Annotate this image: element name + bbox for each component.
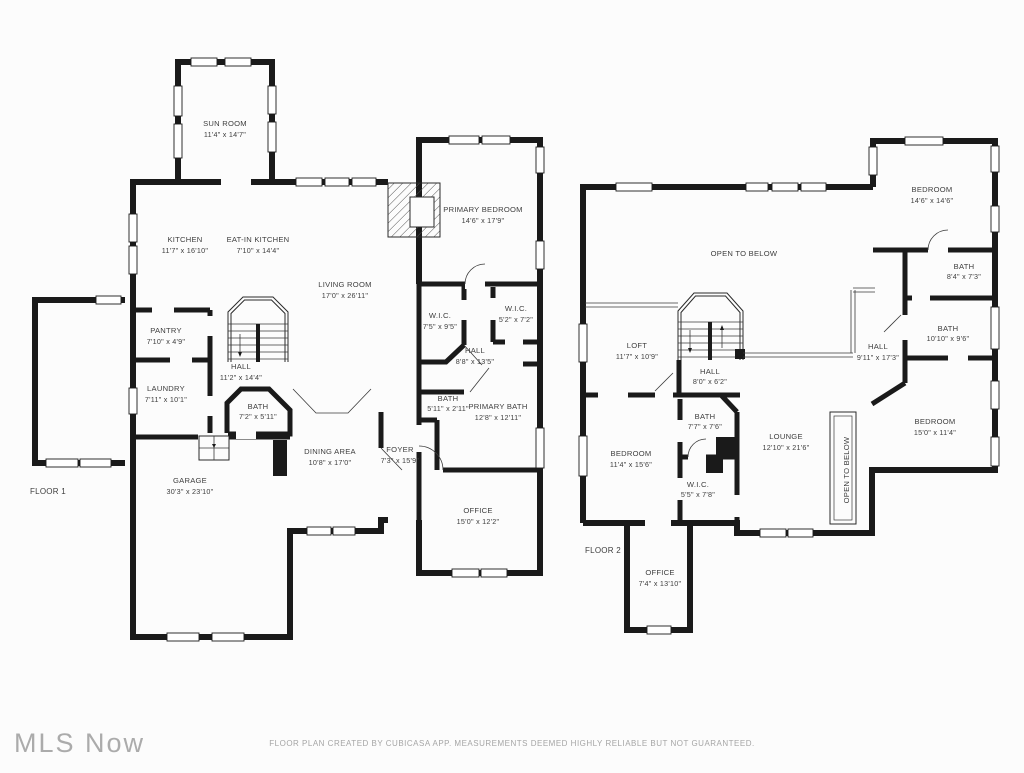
window <box>869 147 877 175</box>
room-dims-bath-main: 7'2" x 5'11" <box>239 412 277 421</box>
chimney-block <box>273 440 287 476</box>
room-dims-foyer: 7'3" x 15'9" <box>381 456 420 465</box>
room-dims-wic-2: 5'2" x 7'2" <box>499 315 533 324</box>
window <box>191 58 217 66</box>
door-opening <box>598 391 628 400</box>
room-label-primary-bath: PRIMARY BATH <box>468 402 527 411</box>
room-dims-sun-room: 11'4" x 14'7" <box>204 130 246 139</box>
room-dims-hall-stairs: 11'2" x 14'4" <box>220 373 262 382</box>
door-opening <box>236 430 256 439</box>
window <box>482 136 510 144</box>
door-opening <box>645 519 671 528</box>
fireplace <box>388 183 440 237</box>
door-opening <box>460 300 469 320</box>
window <box>129 246 137 274</box>
room-label-bedroom-2: BEDROOM <box>915 417 956 426</box>
window <box>129 214 137 242</box>
window <box>991 437 999 466</box>
window <box>80 459 111 467</box>
floor2-labels: OPEN TO BELOW LOFT 11'7" x 10'9" HALL 8'… <box>585 185 981 588</box>
room-label-bath-1: BATH <box>954 262 975 271</box>
wall-segment <box>35 300 125 463</box>
window <box>536 147 544 173</box>
door-opening <box>928 246 948 255</box>
room-label-wic-2: W.I.C. <box>505 304 527 313</box>
fireplace-firebox <box>410 197 434 227</box>
window <box>296 178 322 186</box>
window <box>268 122 276 152</box>
window <box>46 459 78 467</box>
room-dims-primary-bath: 12'8" x 12'11" <box>475 413 522 422</box>
floor2-windows <box>579 137 999 634</box>
floor2-door-openings <box>598 246 968 528</box>
wall-segment <box>381 284 419 520</box>
garage-entry-steps <box>199 436 229 460</box>
window <box>647 626 671 634</box>
window <box>333 527 355 535</box>
room-label-office: OFFICE <box>463 506 492 515</box>
room-label-laundry: LAUNDRY <box>147 384 185 393</box>
room-label-wic: W.I.C. <box>687 480 709 489</box>
window <box>746 183 768 191</box>
room-dims-hall-upper: 8'8" x 13'5" <box>456 357 495 366</box>
room-dims-bedroom-2: 15'0" x 11'4" <box>914 428 956 437</box>
window <box>212 633 244 641</box>
floor2-walls <box>583 141 995 630</box>
window <box>760 529 786 537</box>
room-label-dining-area: DINING AREA <box>304 447 356 456</box>
door-opening <box>221 178 251 187</box>
floor2-label: FLOOR 2 <box>585 546 621 555</box>
door-opening <box>415 425 424 452</box>
room-dims-primary-bedroom: 14'6" x 17'9" <box>462 216 505 225</box>
room-dims-hall2: 9'11" x 17'3" <box>857 353 899 362</box>
room-dims-bath-2: 10'10" x 9'6" <box>927 334 970 343</box>
room-dims-eat-in-kitchen: 7'10" x 14'4" <box>237 246 280 255</box>
chimney-block <box>716 437 737 455</box>
window <box>174 86 182 116</box>
window <box>307 527 331 535</box>
floor-plan-page: SUN ROOM 11'4" x 14'7" KITCHEN 11'7" x 1… <box>0 0 1024 768</box>
floor-plan-drawing: SUN ROOM 11'4" x 14'7" KITCHEN 11'7" x 1… <box>0 0 1024 768</box>
window <box>616 183 652 191</box>
floor1-label: FLOOR 1 <box>30 487 66 496</box>
window <box>96 296 121 304</box>
room-dims-lounge: 12'10" x 21'6" <box>763 443 810 452</box>
room-label-primary-bedroom: PRIMARY BEDROOM <box>443 205 522 214</box>
window <box>225 58 251 66</box>
window <box>905 137 943 145</box>
room-dims-pantry: 7'10" x 4'9" <box>147 337 186 346</box>
room-label-bath-main: BATH <box>248 402 269 411</box>
room-label-bedroom-1: BEDROOM <box>912 185 953 194</box>
entry-threshold <box>389 516 416 525</box>
room-label-pantry: PANTRY <box>150 326 182 335</box>
room-label-hall-upper: HALL <box>465 346 485 355</box>
floor2-staircase <box>678 293 745 360</box>
room-dims-wic-1: 7'5" x 9'5" <box>423 322 457 331</box>
window <box>452 569 479 577</box>
room-dims-living-room: 17'0" x 26'11" <box>322 291 369 300</box>
room-dims-bath-hall: 5'11" x 2'11" <box>427 404 469 413</box>
room-label-hall-stairs2: HALL <box>700 367 720 376</box>
door-opening <box>206 316 215 336</box>
window <box>481 569 507 577</box>
room-dims-bedroom-1: 14'6" x 14'6" <box>911 196 954 205</box>
door-opening <box>465 280 485 289</box>
door-opening <box>676 420 685 442</box>
window <box>991 206 999 232</box>
room-dims-garage: 30'3" x 23'10" <box>167 487 214 496</box>
chimney-block <box>706 455 723 473</box>
door-opening <box>152 306 174 315</box>
room-label-lounge: LOUNGE <box>769 432 803 441</box>
cubicasa-disclaimer: FLOOR PLAN CREATED BY CUBICASA APP. MEAS… <box>0 739 1024 748</box>
window <box>536 428 544 468</box>
floor1-plan: SUN ROOM 11'4" x 14'7" KITCHEN 11'7" x 1… <box>30 58 544 641</box>
floor2-plan: OPEN TO BELOW LOFT 11'7" x 10'9" HALL 8'… <box>579 137 999 634</box>
door-opening <box>912 294 930 303</box>
window <box>536 241 544 269</box>
room-dims-office: 15'0" x 12'2" <box>457 517 500 526</box>
room-dims-hall-stairs2: 8'0" x 6'2" <box>693 377 727 386</box>
window <box>579 324 587 362</box>
window <box>449 136 479 144</box>
window <box>788 529 813 537</box>
room-dims-wic: 5'5" x 7'8" <box>681 490 715 499</box>
door-opening <box>948 354 968 363</box>
window <box>801 183 826 191</box>
room-label-bath-hall: BATH <box>438 394 459 403</box>
room-dims-dining-area: 10'8" x 17'0" <box>309 458 352 467</box>
door-opening <box>655 391 673 400</box>
open-to-below-side-label: OPEN TO BELOW <box>842 436 851 503</box>
door-opening <box>170 356 192 365</box>
room-label-loft: LOFT <box>627 341 648 350</box>
room-label-bedroom-3: BEDROOM <box>611 449 652 458</box>
door-opening <box>206 396 215 416</box>
window <box>772 183 798 191</box>
room-label-kitchen: KITCHEN <box>167 235 202 244</box>
room-dims-laundry: 7'11" x 10'1" <box>145 395 187 404</box>
room-label-foyer: FOYER <box>386 445 414 454</box>
room-label-wic-1: W.I.C. <box>429 311 451 320</box>
room-label-office2: OFFICE <box>645 568 674 577</box>
window <box>129 388 137 414</box>
room-label-sun-room: SUN ROOM <box>203 119 247 128</box>
door-opening <box>489 298 498 320</box>
window <box>167 633 199 641</box>
room-label-living-room: LIVING ROOM <box>318 280 371 289</box>
window <box>268 86 276 114</box>
window <box>991 381 999 409</box>
wall-segment <box>872 358 905 404</box>
room-dims-office2: 7'4" x 13'10" <box>639 579 682 588</box>
window <box>991 307 999 349</box>
floor1-staircase <box>228 297 288 362</box>
open-to-below-label: OPEN TO BELOW <box>711 249 778 258</box>
door-opening <box>733 495 742 517</box>
room-dims-bath-1: 8'4" x 7'3" <box>947 272 981 281</box>
window <box>579 436 587 476</box>
room-label-bath-3: BATH <box>695 412 716 421</box>
room-label-eat-in-kitchen: EAT-IN KITCHEN <box>227 235 290 244</box>
window <box>174 124 182 158</box>
room-dims-kitchen: 11'7" x 16'10" <box>162 246 209 255</box>
room-label-garage: GARAGE <box>173 476 207 485</box>
window <box>991 146 999 172</box>
room-label-hall2: HALL <box>868 342 888 351</box>
room-dims-loft: 11'7" x 10'9" <box>616 352 658 361</box>
window <box>325 178 349 186</box>
room-label-hall-stairs: HALL <box>231 362 251 371</box>
room-dims-bedroom-3: 11'4" x 15'6" <box>610 460 652 469</box>
room-label-bath-2: BATH <box>938 324 959 333</box>
door-opening <box>688 453 706 462</box>
door-opening <box>505 338 523 347</box>
room-dims-bath-3: 7'7" x 7'6" <box>688 422 722 431</box>
window <box>352 178 376 186</box>
